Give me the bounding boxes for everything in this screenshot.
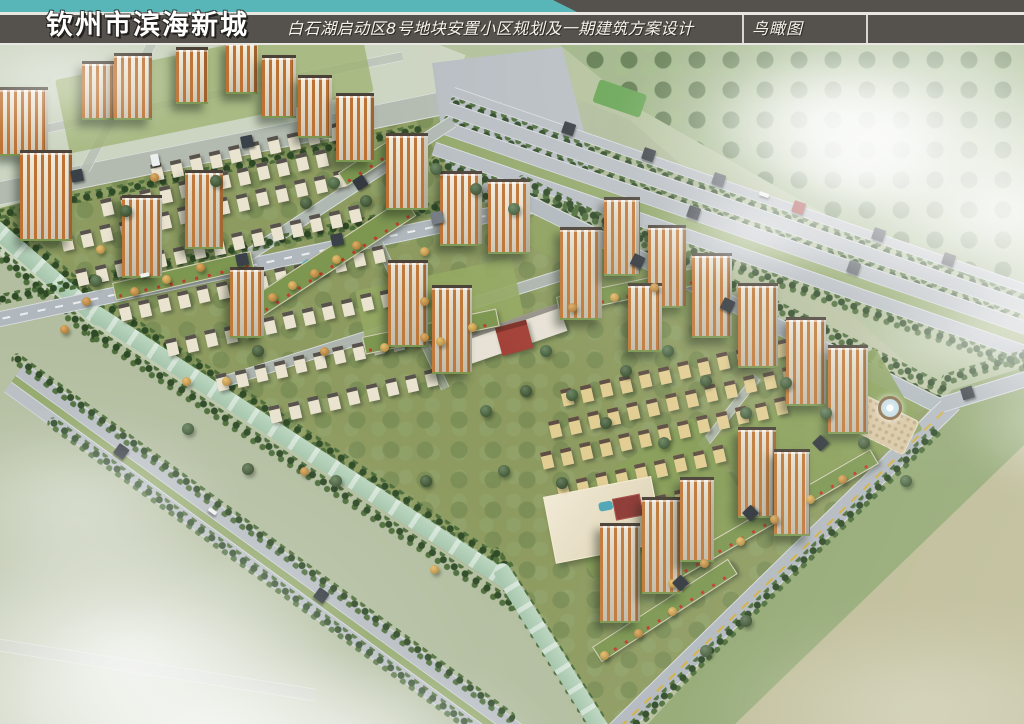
apartment-tower [774, 449, 810, 536]
apartment-tower [560, 227, 602, 320]
townhouse [693, 450, 708, 469]
apartment-tower [828, 345, 868, 434]
townhouse [237, 167, 252, 186]
townhouse [654, 459, 669, 478]
townhouse [763, 371, 778, 390]
apartment-tower [230, 267, 264, 338]
townhouse [254, 364, 269, 383]
townhouse [332, 346, 347, 365]
apartment-tower [432, 285, 472, 374]
townhouse [307, 396, 322, 415]
townhouse [255, 188, 270, 207]
townhouse [80, 229, 95, 248]
apartment-tower [262, 55, 296, 118]
view-type-label: 鸟瞰图 [752, 19, 803, 39]
townhouse [256, 162, 271, 181]
townhouse [341, 298, 356, 317]
townhouse [165, 338, 180, 357]
apartment-tower [680, 477, 714, 562]
car [430, 211, 444, 225]
townhouse [607, 407, 622, 426]
townhouse [228, 145, 243, 164]
car [240, 135, 254, 149]
apartment-tower [185, 170, 223, 249]
cell-divider [742, 15, 744, 43]
townhouse [100, 198, 115, 217]
townhouse [646, 398, 661, 417]
townhouse [313, 351, 328, 370]
townhouse [697, 357, 712, 376]
townhouse [348, 205, 363, 224]
townhouse [716, 411, 731, 430]
plan-subtitle: 白石湖启动区8号地块安置小区规划及一期建筑方案设计 [287, 19, 694, 39]
townhouse [75, 268, 90, 287]
apartment-tower [82, 61, 116, 120]
apartment-tower [440, 171, 482, 246]
townhouse [755, 402, 770, 421]
townhouse [685, 389, 700, 408]
townhouse [599, 438, 614, 457]
townhouse [580, 384, 595, 403]
townhouse [329, 210, 344, 229]
townhouse [548, 420, 563, 439]
apartment-tower [600, 523, 640, 623]
apartment-tower [176, 47, 208, 104]
townhouse [138, 299, 153, 318]
townhouse [204, 329, 219, 348]
apartment-tower [122, 195, 162, 278]
townhouse [216, 281, 231, 300]
townhouse [658, 366, 673, 385]
townhouse [366, 383, 381, 402]
apartment-tower [388, 260, 428, 347]
townhouse [235, 369, 250, 388]
townhouse [540, 451, 555, 470]
apartment-tower [336, 93, 374, 162]
apartment-tower [488, 179, 530, 254]
townhouse [302, 307, 317, 326]
townhouse [405, 374, 420, 393]
townhouse [360, 293, 375, 312]
townhouse [263, 316, 278, 335]
townhouse [579, 442, 594, 461]
car [235, 253, 249, 267]
townhouse [236, 193, 251, 212]
townhouse [560, 388, 575, 407]
townhouse [294, 179, 309, 198]
townhouse [385, 378, 400, 397]
cell-divider [866, 15, 868, 43]
apartment-tower [738, 283, 778, 368]
townhouse [267, 136, 282, 155]
townhouse [99, 224, 114, 243]
townhouse [282, 311, 297, 330]
townhouse [295, 153, 310, 172]
townhouse [619, 375, 634, 394]
townhouse [268, 405, 283, 424]
townhouse [743, 375, 758, 394]
townhouse [275, 184, 290, 203]
townhouse [170, 159, 185, 178]
divider-line [0, 43, 1024, 45]
townhouse [677, 361, 692, 380]
townhouse [560, 447, 575, 466]
townhouse [618, 433, 633, 452]
townhouse [696, 415, 711, 434]
apartment-tower [298, 75, 332, 138]
apartment-tower [738, 427, 776, 518]
townhouse [215, 373, 230, 392]
townhouse [638, 429, 653, 448]
townhouse [665, 393, 680, 412]
townhouse [157, 294, 172, 313]
townhouse [321, 302, 336, 321]
apartment-tower [0, 87, 48, 156]
townhouse [274, 360, 289, 379]
apartment-tower [386, 133, 428, 210]
townhouse [288, 401, 303, 420]
townhouse [270, 223, 285, 242]
townhouse [118, 303, 133, 322]
townhouse [327, 392, 342, 411]
townhouse [185, 334, 200, 353]
title-bar: 钦州市滨海新城 白石湖启动区8号地块安置小区规划及一期建筑方案设计 鸟瞰图 [0, 0, 1024, 45]
apartment-tower [628, 283, 662, 352]
townhouse [177, 290, 192, 309]
townhouse [638, 370, 653, 389]
townhouse [309, 214, 324, 233]
townhouse [209, 150, 224, 169]
townhouse [346, 387, 361, 406]
townhouse [716, 352, 731, 371]
townhouse [657, 424, 672, 443]
presentation-board: 钦州市滨海新城 白石湖启动区8号地块安置小区规划及一期建筑方案设计 鸟瞰图 [0, 0, 1024, 724]
apartment-tower [20, 150, 72, 241]
townhouse [568, 416, 583, 435]
townhouse [196, 285, 211, 304]
townhouse [293, 355, 308, 374]
townhouse [251, 228, 266, 247]
townhouse [315, 149, 330, 168]
aerial-rendering [0, 45, 1024, 724]
townhouse [712, 445, 727, 464]
townhouse [276, 158, 291, 177]
townhouse [372, 245, 387, 264]
fountain [878, 396, 902, 420]
apartment-tower [692, 253, 732, 338]
townhouse [626, 402, 641, 421]
townhouse [724, 380, 739, 399]
project-title: 钦州市滨海新城 [46, 11, 249, 41]
townhouse [314, 175, 329, 194]
townhouse [735, 406, 750, 425]
townhouse [599, 379, 614, 398]
apartment-tower [226, 45, 258, 94]
townhouse [95, 264, 110, 283]
apartment-tower [786, 317, 826, 406]
townhouse [673, 454, 688, 473]
townhouse [587, 411, 602, 430]
townhouse [290, 219, 305, 238]
car [330, 233, 344, 247]
car [70, 169, 84, 183]
townhouse [677, 420, 692, 439]
townhouse [704, 384, 719, 403]
townhouse [231, 232, 246, 251]
apartment-tower [114, 53, 152, 120]
